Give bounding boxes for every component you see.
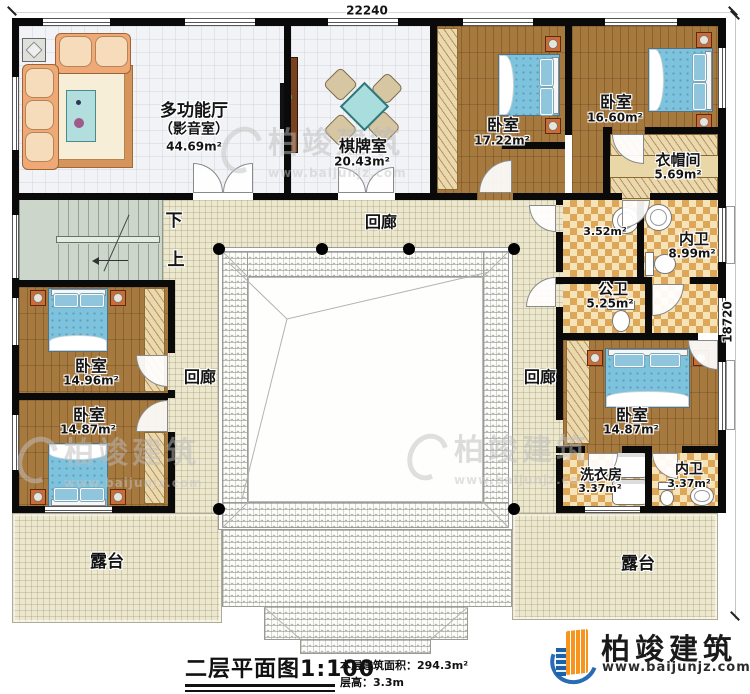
terrace-label-right: 露台 — [621, 556, 655, 574]
wall-segment — [603, 127, 612, 134]
sofa-cushion — [25, 68, 54, 98]
coffee-table — [66, 90, 96, 142]
dimension-tick — [7, 6, 17, 16]
wall-segment — [645, 284, 652, 340]
room-area-bath-public: 5.25m² — [586, 298, 633, 311]
window — [43, 18, 110, 26]
wall-segment — [395, 193, 477, 200]
room-label-bath-bottom: 内卫 — [675, 463, 703, 478]
room-label-multi-hall: 多功能厅 — [160, 103, 228, 121]
corridor-label-right: 回廊 — [524, 370, 556, 387]
table-decor-icon — [74, 118, 84, 128]
stair-treads-lower — [58, 244, 162, 282]
room-area-chess: 20.43m² — [334, 156, 390, 169]
dimension-right: 18720 — [722, 301, 735, 343]
room-area-multi-hall: 44.69m² — [166, 141, 222, 154]
terrace-right — [512, 513, 718, 620]
wardrobe — [437, 28, 458, 190]
room-label-bath-top: 内卫 — [679, 232, 709, 248]
column — [508, 243, 520, 255]
wall-segment — [645, 127, 726, 134]
sink — [645, 204, 672, 231]
wall-segment — [556, 333, 698, 340]
window — [718, 362, 726, 430]
dimension-line-right — [735, 13, 736, 619]
window — [718, 48, 726, 108]
stair-direction-arrow — [98, 260, 128, 261]
floor-height-note: 层高：3.3m — [340, 674, 404, 690]
wall-segment — [253, 193, 338, 200]
column — [213, 243, 225, 255]
nightstand — [110, 290, 126, 306]
wall-segment — [622, 446, 652, 453]
brand-url: www.baijunjz.com — [602, 660, 750, 675]
window — [463, 18, 533, 26]
wall-segment — [556, 232, 563, 272]
room-area-bed-bottom-left: 14.87m² — [60, 424, 116, 437]
stair-railing — [56, 236, 160, 243]
title-underline — [185, 684, 335, 687]
wall-segment — [556, 455, 563, 513]
room-area-bed-b: 16.60m² — [587, 112, 643, 125]
wardrobe — [144, 432, 165, 504]
window — [12, 215, 19, 278]
wall-segment — [603, 134, 610, 200]
bed — [48, 288, 108, 352]
sofa-cushion — [95, 36, 128, 67]
wall-segment — [12, 193, 193, 200]
wall-segment — [645, 453, 652, 506]
column — [508, 503, 520, 515]
toilet-bowl — [660, 490, 674, 506]
stair-arrowhead-icon — [92, 257, 99, 265]
room-label-chess: 棋牌室 — [339, 139, 387, 156]
toilet-tank — [645, 252, 654, 276]
window-sill — [726, 206, 735, 264]
nightstand — [696, 32, 712, 48]
column — [403, 243, 415, 255]
bed — [498, 54, 560, 116]
wall-segment — [168, 390, 175, 398]
wall-segment — [556, 307, 563, 420]
column — [213, 503, 225, 515]
sofa-cushion — [25, 100, 54, 130]
room-area-cloak: 5.69m² — [654, 169, 701, 182]
wall-segment — [284, 26, 291, 193]
window — [185, 18, 255, 26]
brand-logo-icon — [548, 628, 600, 686]
column — [316, 243, 328, 255]
window — [12, 298, 19, 345]
wall-segment — [168, 432, 175, 513]
room-label-bath-public: 公卫 — [598, 282, 628, 298]
room-area-wash: 3.52m² — [583, 226, 626, 238]
bed — [648, 48, 713, 112]
room-area-bed-a: 17.22m² — [474, 135, 530, 148]
wall-segment — [168, 280, 175, 353]
wall-segment — [12, 393, 168, 400]
window-sill — [726, 360, 735, 430]
toilet-bowl — [612, 310, 630, 332]
nightstand — [110, 489, 126, 505]
window — [585, 506, 640, 513]
nightstand — [30, 290, 46, 306]
wall-segment — [556, 506, 726, 513]
wall-segment — [556, 446, 585, 453]
sofa-cushion — [25, 132, 54, 162]
window — [45, 506, 112, 513]
wall-segment — [682, 446, 726, 453]
room-area-bed-right: 14.87m² — [603, 424, 659, 437]
room-label-bed-a: 卧室 — [487, 118, 519, 135]
floor-plan: 22240 18720 多功能厅 （影音室） 44.69m² 棋牌室 20.43… — [0, 0, 750, 694]
stair-label-down: 下 — [166, 213, 183, 231]
room-label-multi-hall-alt: （影音室） — [159, 123, 229, 138]
stair-treads-upper — [58, 198, 162, 236]
floor-area-note: 本层建筑面积：294.3m² — [340, 657, 468, 673]
corridor-label-left: 回廊 — [184, 370, 216, 387]
nightstand — [30, 489, 46, 505]
sofa-cushion — [59, 36, 92, 67]
room-area-bath-bottom: 3.37m² — [667, 478, 710, 490]
room-label-laundry: 洗衣房 — [580, 469, 622, 484]
nightstand — [587, 350, 603, 366]
dimension-top: 22240 — [346, 5, 388, 18]
window — [328, 18, 398, 26]
logo-building-orange-icon — [566, 629, 588, 675]
window — [12, 77, 19, 150]
wall-segment — [650, 193, 726, 200]
wall-segment — [690, 277, 726, 284]
title-underline — [185, 690, 335, 692]
window — [12, 415, 19, 470]
wall-segment — [565, 26, 572, 135]
corridor-label-top: 回廊 — [365, 215, 397, 232]
wall-segment — [556, 200, 563, 205]
wall-segment — [12, 280, 175, 287]
room-label-cloak: 衣帽间 — [655, 153, 700, 169]
room-area-bath-top: 8.99m² — [668, 248, 715, 261]
window — [605, 18, 677, 26]
logo-building-blue-icon — [556, 648, 566, 676]
wall-segment — [430, 26, 437, 193]
plan-title-text: 二层平面图 — [185, 657, 300, 682]
nightstand — [545, 118, 561, 134]
room-label-bed-b: 卧室 — [600, 95, 632, 112]
room-area-laundry: 3.37m² — [578, 483, 621, 495]
window — [718, 208, 726, 262]
nightstand — [545, 36, 561, 52]
terrace-label-left: 露台 — [90, 554, 124, 572]
bed — [48, 443, 108, 507]
roof-fold-lines — [218, 247, 513, 657]
stair-label-up: 上 — [168, 252, 185, 270]
room-area-bed-mid-left: 14.96m² — [63, 375, 119, 388]
table-decor-icon — [76, 100, 81, 105]
bed — [605, 348, 690, 408]
